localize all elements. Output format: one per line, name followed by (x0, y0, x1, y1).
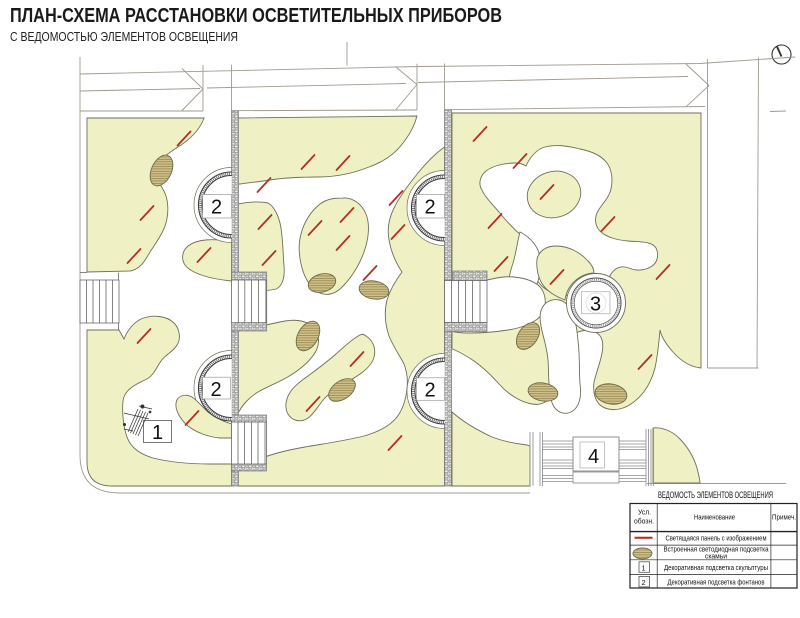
svg-text:Усл.: Усл. (638, 508, 651, 517)
svg-text:Светящаяся панель с изображени: Светящаяся панель с изображением (666, 534, 767, 543)
svg-text:Наименование: Наименование (694, 513, 735, 522)
svg-text:2: 2 (642, 578, 646, 587)
svg-text:ВЕДОМОСТЬ ЭЛЕМЕНТОВ ОСВЕЩЕНИЯ: ВЕДОМОСТЬ ЭЛЕМЕНТОВ ОСВЕЩЕНИЯ (658, 490, 773, 501)
svg-text:Декоративная подсветка скульпт: Декоративная подсветка скульптуры (664, 563, 768, 572)
svg-text:Декоративная подсветка фонтано: Декоративная подсветка фонтанов (668, 578, 765, 587)
svg-text:скамьи: скамьи (705, 552, 727, 561)
svg-text:2: 2 (425, 380, 436, 402)
svg-text:Примеч.: Примеч. (772, 513, 796, 522)
svg-text:2: 2 (211, 197, 222, 219)
svg-text:1: 1 (642, 564, 646, 573)
svg-text:2: 2 (211, 379, 222, 401)
svg-text:С ВЕДОМОСТЬЮ ЭЛЕМЕНТОВ ОСВЕЩЕН: С ВЕДОМОСТЬЮ ЭЛЕМЕНТОВ ОСВЕЩЕНИЯ (10, 30, 238, 44)
svg-text:1: 1 (152, 422, 163, 444)
svg-text:ПЛАН-СХЕМА РАССТАНОВКИ ОСВЕТИТ: ПЛАН-СХЕМА РАССТАНОВКИ ОСВЕТИТЕЛЬНЫХ ПРИ… (10, 4, 502, 27)
svg-text:4: 4 (588, 446, 599, 468)
svg-text:2: 2 (425, 197, 436, 219)
svg-text:обозн.: обозн. (634, 517, 654, 526)
svg-text:3: 3 (590, 294, 601, 316)
